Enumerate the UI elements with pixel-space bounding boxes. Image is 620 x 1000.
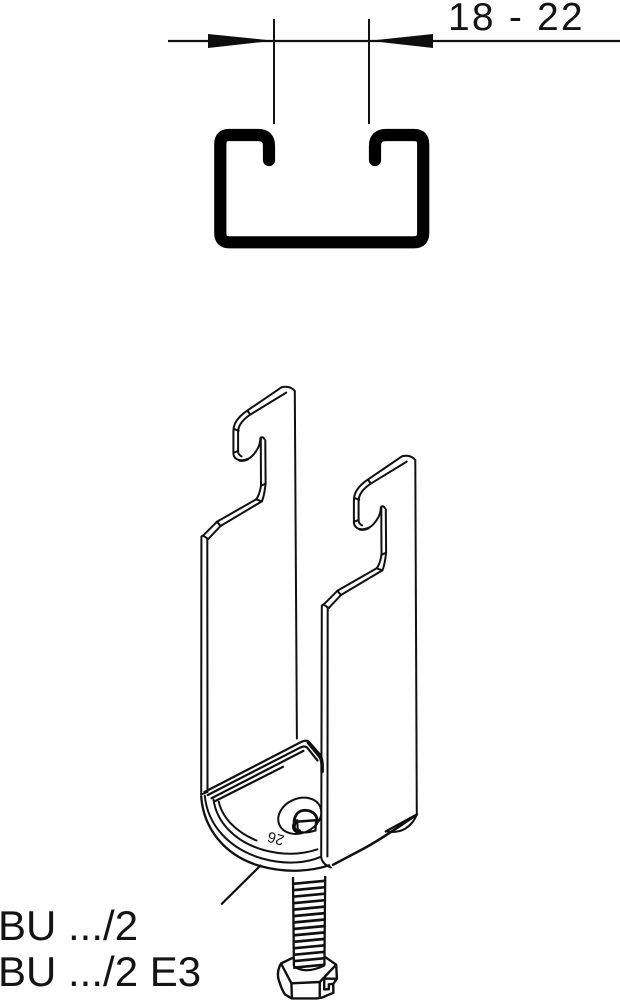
svg-text:18 - 22: 18 - 22 — [448, 0, 585, 39]
svg-text:BU .../2 E3: BU .../2 E3 — [0, 948, 201, 995]
svg-text:BU .../2: BU .../2 — [0, 902, 138, 949]
